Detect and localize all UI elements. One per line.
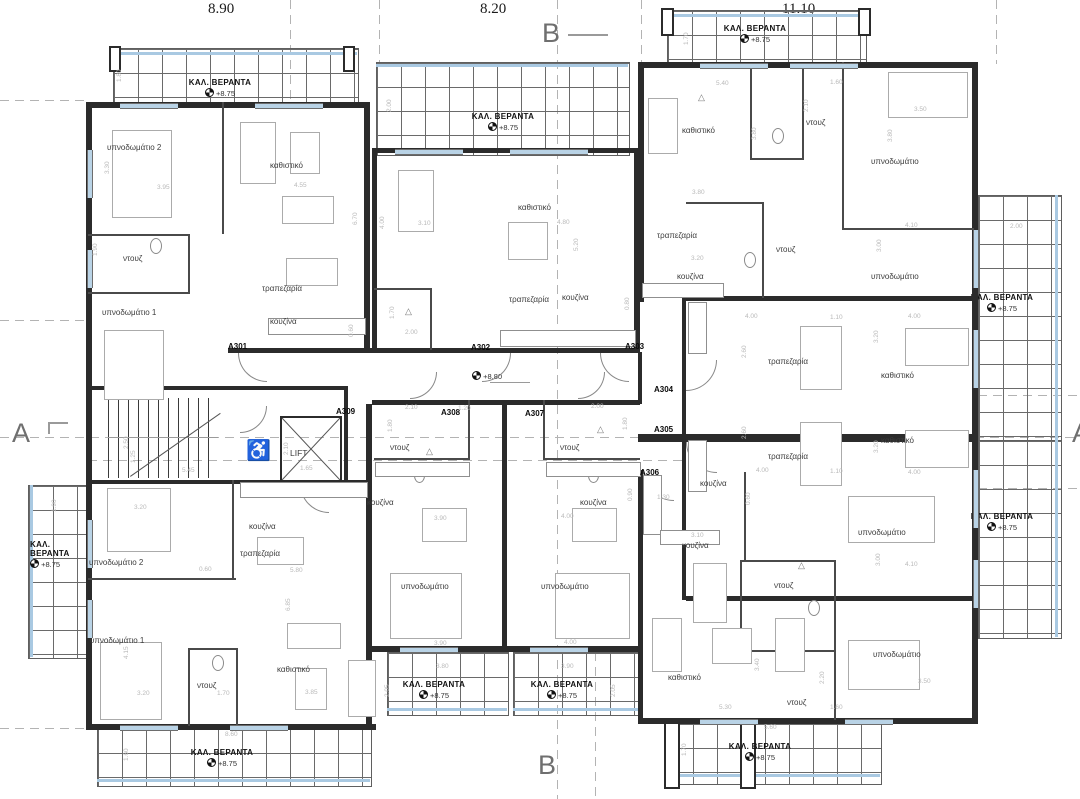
dimension: 1.80 — [116, 69, 123, 82]
dimension: 5.45 — [182, 467, 195, 474]
axis-line — [0, 100, 88, 101]
veranda-label: ΚΑΛ. ΒΕΡΑΝΤΑ +8.75 — [448, 112, 558, 132]
apartment-label: A305 — [654, 425, 673, 434]
window — [700, 719, 758, 725]
veranda-edge — [1055, 440, 1058, 637]
room-label: υπνοδωμάτιο — [871, 157, 919, 166]
partition — [88, 234, 190, 236]
level-mark-icon — [30, 559, 39, 568]
table — [508, 222, 548, 260]
veranda-edge — [1055, 195, 1058, 440]
sofa — [348, 660, 376, 717]
dimension: 4.00 — [908, 469, 921, 476]
apartment-label: A304 — [654, 385, 673, 394]
dimension: 2.10 — [803, 99, 810, 112]
section-marker-a-right: A — [1072, 418, 1080, 449]
dimension: 3.30 — [104, 161, 111, 174]
axis-line — [996, 0, 997, 64]
room-label: τραπεζαρία — [768, 357, 808, 366]
dimension: 1.10 — [830, 468, 843, 475]
sofa — [240, 122, 276, 184]
drain-icon: △ — [405, 306, 412, 317]
room-label: τραπεζαρία — [509, 295, 549, 304]
door-arc — [482, 353, 511, 382]
dimension: 3.20 — [691, 255, 704, 262]
level-mark-icon — [745, 752, 754, 761]
dimension: 3.95 — [157, 184, 170, 191]
door-arc — [240, 406, 267, 433]
kitchen-counter — [688, 302, 707, 354]
dimension: 2.05 — [610, 684, 617, 697]
level-mark-icon — [740, 34, 749, 43]
veranda-right-lower — [978, 440, 1062, 639]
window — [120, 103, 178, 109]
room-label: τραπεζαρία — [262, 284, 302, 293]
room-label: τραπεζαρία — [768, 452, 808, 461]
room-label: καθιστικό — [668, 673, 701, 682]
dimension: 2.00 — [1010, 223, 1023, 230]
level-mark-icon — [205, 88, 214, 97]
room-label: κουζίνα — [580, 498, 607, 507]
wall — [638, 718, 978, 724]
dining-table — [286, 258, 338, 286]
dimension: 2.50 — [123, 436, 130, 449]
level-mark-icon — [547, 690, 556, 699]
door-arc — [410, 372, 437, 399]
apartment-label: A301 — [228, 342, 247, 351]
window — [973, 470, 979, 528]
partition — [742, 560, 836, 562]
partition — [88, 292, 190, 294]
sofa — [905, 328, 969, 366]
dimension: 0.60 — [745, 492, 752, 505]
partition — [802, 66, 804, 158]
dimension: 0.60 — [199, 566, 212, 573]
dimension: 3.85 — [305, 689, 318, 696]
door-arc — [238, 353, 267, 382]
section-marker-b-top: B — [542, 18, 560, 49]
dimension: 3.80 — [751, 127, 758, 140]
window — [973, 230, 979, 288]
apartment-label: A309 — [336, 407, 355, 416]
dimension: 4.00 — [745, 313, 758, 320]
sofa — [775, 618, 805, 672]
dimension: 3.20 — [137, 690, 150, 697]
bed — [104, 330, 164, 400]
partition — [834, 560, 836, 720]
partition — [188, 648, 190, 726]
dimension: 3.90 — [434, 640, 447, 647]
veranda-post — [661, 8, 674, 36]
sofa — [282, 196, 334, 224]
dimension: 2.60 — [741, 345, 748, 358]
window — [973, 560, 979, 608]
section-marker-line — [48, 422, 68, 424]
dimension: 0.60 — [348, 324, 355, 337]
kitchen-counter — [643, 475, 662, 535]
level-mark-icon — [987, 303, 996, 312]
veranda-edge — [387, 708, 507, 711]
dimension: 1.90 — [51, 499, 58, 512]
dimension: 4.00 — [379, 216, 386, 229]
room-label: ντουζ — [806, 118, 825, 127]
dimension: 1.20 — [458, 405, 471, 412]
level-mark-icon — [987, 522, 996, 531]
dimension: 6.70 — [352, 212, 359, 225]
dimension: 4.80 — [557, 219, 570, 226]
veranda-label: ΚΑΛ. ΒΕΡΑΝΤΑ +8.75 — [700, 24, 810, 44]
dimension: 1.10 — [830, 314, 843, 321]
window — [400, 647, 458, 653]
dimension: 2.10 — [405, 404, 418, 411]
partition — [430, 288, 432, 350]
dimension: 5.80 — [290, 567, 303, 574]
room-label: υπνοδωμάτιο — [858, 528, 906, 537]
dimension: 3.50 — [914, 106, 927, 113]
window — [87, 600, 93, 638]
door-arc — [686, 360, 717, 391]
partition — [236, 648, 238, 726]
sofa — [648, 98, 678, 154]
partition — [842, 62, 844, 230]
toilet-icon — [808, 600, 820, 616]
bed — [107, 488, 171, 552]
room-label: ντουζ — [390, 443, 409, 452]
dimension: 4.15 — [123, 646, 130, 659]
dimension: 2.20 — [819, 671, 826, 684]
wall — [686, 596, 976, 601]
room-label: κουζίνα — [700, 479, 727, 488]
dimension: 1.70 — [217, 690, 230, 697]
dimension: 3.80 — [692, 189, 705, 196]
room-label: ντουζ — [787, 698, 806, 707]
table — [422, 508, 467, 542]
window — [530, 647, 588, 653]
room-label: ντουζ — [123, 254, 142, 263]
bed — [100, 642, 162, 720]
drain-icon: △ — [426, 446, 433, 457]
dimension: 8.60 — [225, 731, 238, 738]
room-label: ντουζ — [197, 681, 216, 690]
wall — [972, 62, 978, 724]
dimension: 1.80 — [387, 419, 394, 432]
kitchen-counter — [240, 482, 368, 498]
wall — [502, 400, 507, 650]
section-marker-line — [568, 34, 608, 36]
dimension: 1.60 — [830, 79, 843, 86]
room-label: καθιστικό — [881, 371, 914, 380]
wall — [372, 148, 377, 352]
wall — [638, 352, 642, 404]
window — [790, 63, 858, 69]
sofa — [287, 623, 341, 649]
partition — [686, 202, 764, 204]
veranda-edge — [30, 485, 33, 657]
room-label: υπνοδωμάτιο — [401, 582, 449, 591]
room-label: υπνοδωμάτιο — [541, 582, 589, 591]
room-label: υπνοδωμάτιο 2 — [107, 143, 161, 152]
dimension: 3.90 — [561, 663, 574, 670]
dimension: 1.60 — [830, 704, 843, 711]
dimension: 2.00 — [386, 99, 393, 112]
veranda-edge — [376, 64, 628, 67]
partition — [374, 288, 432, 290]
level-mark-icon — [419, 690, 428, 699]
window — [700, 63, 768, 69]
veranda-post — [343, 46, 355, 72]
dimension-total: 8.90 — [208, 1, 234, 18]
dimension: 1.30 — [657, 494, 670, 501]
dining-table — [693, 563, 727, 623]
room-label: καθιστικό — [270, 161, 303, 170]
room-label: ντουζ — [776, 245, 795, 254]
room-label: καθιστικό — [881, 436, 914, 445]
toilet-icon — [744, 252, 756, 268]
room-label: υπνοδωμάτιο 1 — [90, 636, 144, 645]
room-label: υπνοδωμάτιο 1 — [102, 308, 156, 317]
lift-label: LIFT — [290, 448, 307, 458]
apartment-label: A307 — [525, 409, 544, 418]
table — [712, 628, 752, 664]
veranda-top-middle — [376, 62, 630, 156]
dimension: 4.00 — [908, 313, 921, 320]
room-label: κουζίνα — [562, 293, 589, 302]
kitchen-counter — [500, 330, 636, 347]
dimension: 1.60 — [123, 748, 130, 761]
room-label: καθιστικό — [518, 203, 551, 212]
veranda-label: ΚΑΛ. ΒΕΡΑΝΤΑ +8.75 — [30, 540, 82, 569]
partition — [88, 578, 236, 580]
dimension: 2.00 — [405, 329, 418, 336]
window — [973, 330, 979, 388]
veranda-edge — [667, 14, 865, 17]
wall — [682, 296, 686, 600]
section-marker-a-left: A — [12, 418, 30, 449]
dimension: 0.80 — [624, 297, 631, 310]
partition — [374, 458, 470, 460]
room-label: καθιστικό — [682, 126, 715, 135]
room-label: κουζίνα — [682, 541, 709, 550]
apartment-label: A302 — [471, 343, 490, 352]
room-label: υπνοδωμάτιο 2 — [89, 558, 143, 567]
window — [395, 149, 463, 155]
window — [845, 719, 893, 725]
apartment-label: A306 — [640, 468, 659, 477]
kitchen-counter — [546, 462, 641, 477]
veranda-edge — [113, 52, 357, 55]
room-label: τραπεζαρία — [657, 231, 697, 240]
level-mark-icon — [488, 122, 497, 131]
wall — [638, 62, 644, 302]
sofa — [652, 618, 682, 672]
partition — [750, 158, 804, 160]
dimension: 1.70 — [389, 306, 396, 319]
veranda-right-upper — [978, 195, 1062, 442]
level-mark-icon — [472, 371, 481, 380]
dimension-total: 8.20 — [480, 1, 506, 18]
partition — [750, 66, 752, 158]
room-label: ντουζ — [774, 581, 793, 590]
room-label: κουζίνα — [270, 317, 297, 326]
drain-icon: △ — [798, 560, 805, 571]
partition — [232, 480, 234, 580]
dimension: 1.70 — [683, 32, 690, 45]
partition — [222, 102, 224, 234]
room-label: κουζίνα — [367, 498, 394, 507]
drain-icon: △ — [698, 92, 705, 103]
partition — [744, 472, 746, 560]
room-label: ντουζ — [560, 443, 579, 452]
dimension: 5.30 — [719, 704, 732, 711]
toilet-icon — [150, 238, 162, 254]
veranda-label: ΚΑΛ. ΒΕΡΑΝΤΑ +8.75 — [705, 742, 815, 762]
room-label: κουζίνα — [249, 522, 276, 531]
partition — [762, 202, 764, 298]
room-label: υπνοδωμάτιο — [873, 650, 921, 659]
dimension: 3.20 — [134, 504, 147, 511]
partition — [188, 648, 238, 650]
window — [255, 103, 323, 109]
room-label: καθιστικό — [277, 665, 310, 674]
dimension: 3.20 — [873, 440, 880, 453]
section-marker-line — [48, 422, 50, 434]
partition — [188, 234, 190, 294]
window — [87, 150, 93, 198]
door-arc — [578, 372, 605, 399]
axis-line — [641, 0, 642, 64]
dimension: 2.10 — [283, 442, 290, 455]
veranda-post — [858, 8, 871, 36]
kitchen-counter — [642, 283, 724, 298]
dimension: 1.90 — [92, 243, 99, 256]
wall — [228, 348, 640, 353]
dimension: 3.50 — [918, 678, 931, 685]
dimension: 5.40 — [716, 80, 729, 87]
section-marker-b-bottom: B — [538, 750, 556, 781]
dimension: 3.80 — [887, 129, 894, 142]
dimension: 3.90 — [434, 515, 447, 522]
dimension: 4.10 — [905, 561, 918, 568]
dimension: 4.00 — [756, 467, 769, 474]
wall — [364, 102, 370, 352]
wall — [686, 296, 976, 301]
dimension: 0.90 — [627, 488, 634, 501]
axis-line — [0, 320, 88, 321]
dimension: 2.05 — [384, 684, 391, 697]
dimension: 1.70 — [681, 743, 688, 756]
dimension: 2.60 — [741, 426, 748, 439]
veranda-label: ΚΑΛ. ΒΕΡΑΝΤΑ +8.75 — [167, 748, 277, 768]
window — [120, 725, 178, 731]
room-label: κουζίνα — [677, 272, 704, 281]
wall — [344, 386, 348, 484]
dimension: 5.60 — [764, 724, 777, 731]
window — [510, 149, 588, 155]
dimension: 2.00 — [591, 403, 604, 410]
veranda-edge — [668, 774, 880, 777]
apartment-label: A303 — [625, 342, 644, 351]
table — [572, 508, 617, 542]
drain-icon: △ — [597, 424, 604, 435]
room-label: υπνοδωμάτιο — [871, 272, 919, 281]
dimension: 3.00 — [876, 239, 883, 252]
dimension: 3.00 — [875, 553, 882, 566]
level-mark-icon — [207, 758, 216, 767]
dimension: 3.10 — [418, 220, 431, 227]
dimension: 3.10 — [691, 532, 704, 539]
wheelchair-icon: ♿ — [246, 438, 271, 463]
axis-line — [379, 0, 380, 64]
axis-line — [0, 728, 97, 729]
dimension: 1.65 — [300, 465, 313, 472]
toilet-icon — [212, 655, 224, 671]
dimension: 1.25 — [130, 450, 137, 463]
kitchen-counter — [375, 462, 470, 477]
veranda-edge — [513, 708, 638, 711]
dimension: 1.80 — [622, 417, 629, 430]
veranda-edge — [97, 779, 370, 782]
veranda-label: ΚΑΛ. ΒΕΡΑΝΤΑ +8.75 — [508, 680, 616, 700]
veranda-label: ΚΑΛ. ΒΕΡΑΝΤΑ +8.75 — [165, 78, 275, 98]
veranda-label: ΚΑΛ. ΒΕΡΑΝΤΑ +8.75 — [380, 680, 488, 700]
dimension: 3.40 — [754, 658, 761, 671]
partition — [543, 458, 640, 460]
dimension: 3.20 — [873, 330, 880, 343]
bed — [888, 72, 968, 118]
dimension: 4.00 — [561, 513, 574, 520]
sofa — [905, 430, 969, 468]
veranda-post — [664, 721, 680, 789]
dimension: 4.55 — [294, 182, 307, 189]
floor-plan-sheet: 8.90 8.20 11.10 B B A A ΚΑΛ. ΒΕΡΑΝΤΑ +8.… — [0, 0, 1080, 799]
dimension: 4.10 — [905, 222, 918, 229]
room-label: τραπεζαρία — [240, 549, 280, 558]
dimension: 6.85 — [285, 598, 292, 611]
toilet-icon — [772, 128, 784, 144]
dimension: 3.80 — [436, 663, 449, 670]
bed — [848, 640, 920, 690]
level-line — [490, 382, 530, 383]
dimension: 4.00 — [564, 639, 577, 646]
window — [230, 725, 288, 731]
dimension: 5.20 — [573, 238, 580, 251]
